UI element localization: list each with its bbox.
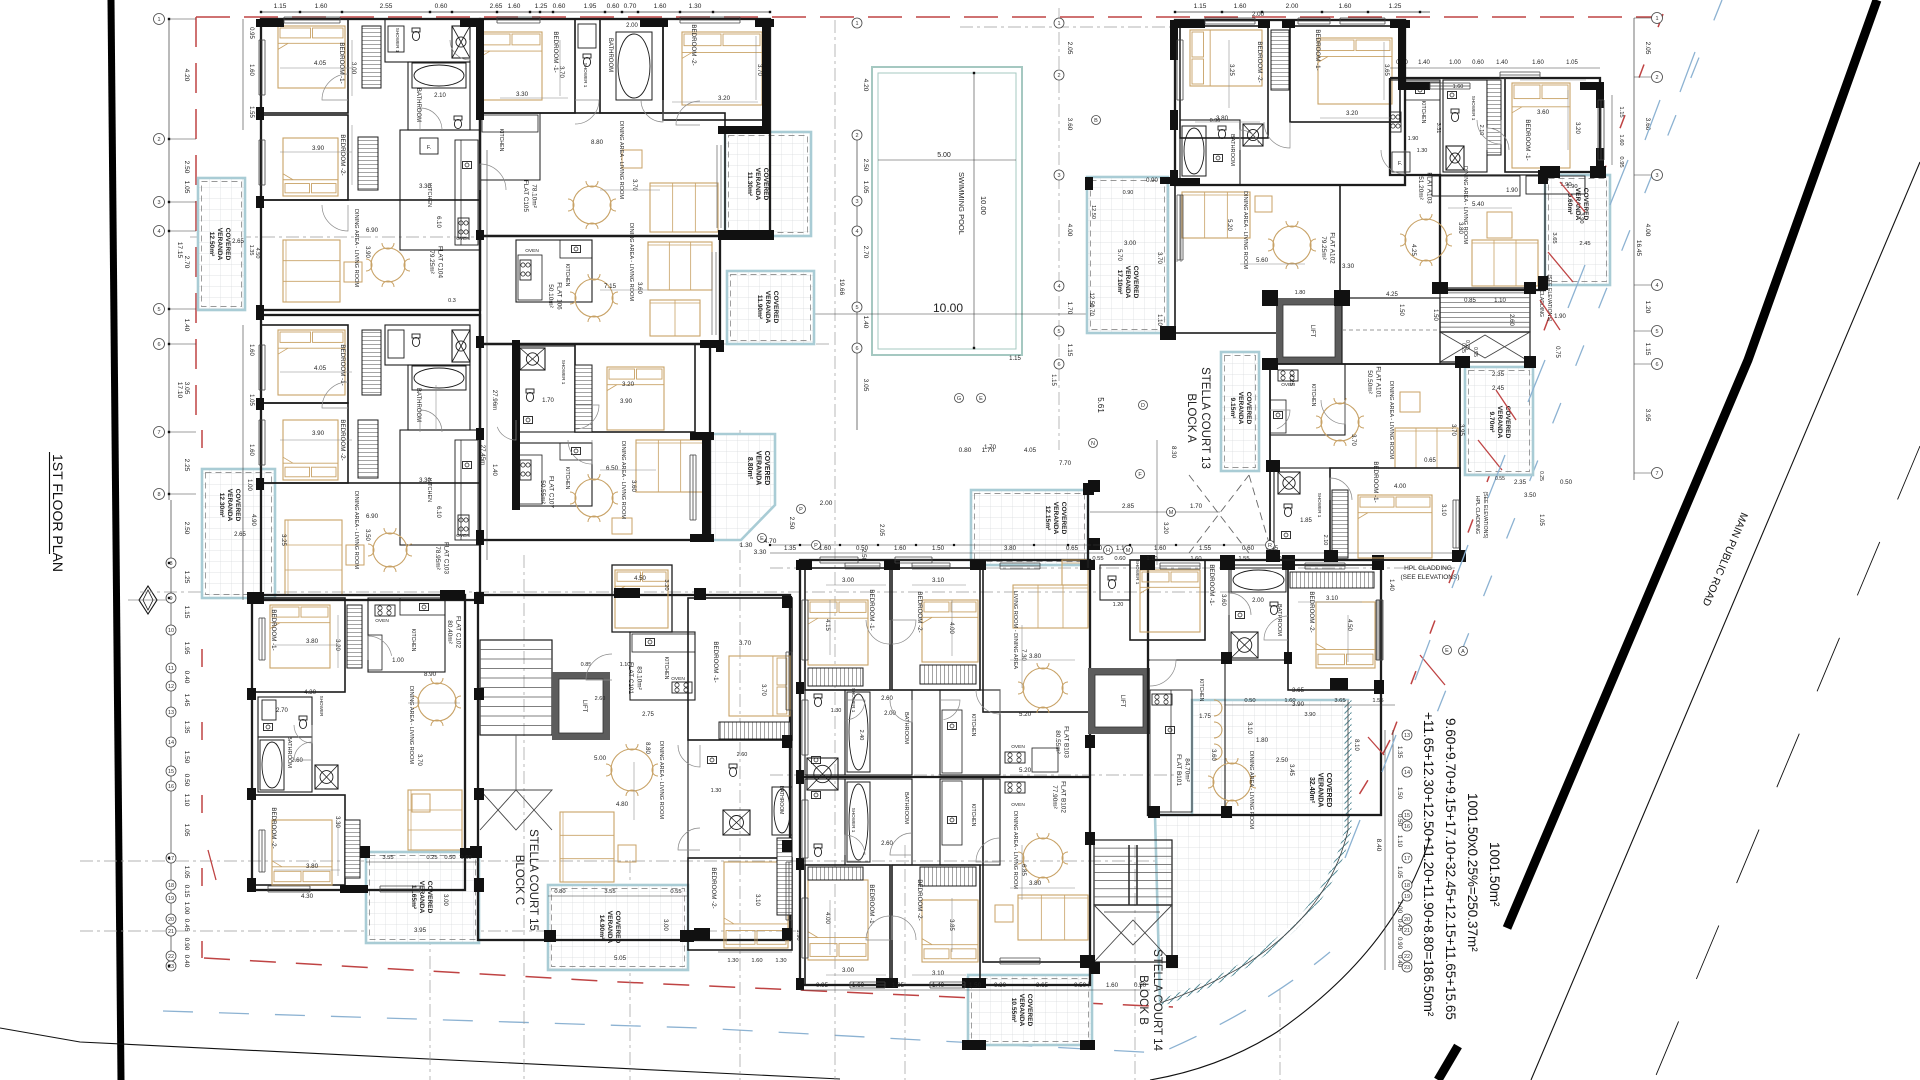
svg-text:LIVING ROOM - DINING AREA: LIVING ROOM - DINING AREA	[1012, 591, 1018, 670]
svg-text:BEDROOM -2-: BEDROOM -2-	[916, 591, 923, 632]
svg-text:22: 22	[1404, 954, 1410, 960]
svg-text:77.90m²: 77.90m²	[1051, 785, 1058, 808]
svg-text:2.70: 2.70	[183, 256, 190, 269]
svg-text:6.90: 6.90	[366, 227, 379, 234]
svg-text:3.25: 3.25	[280, 534, 286, 546]
svg-text:1.60: 1.60	[508, 3, 521, 10]
svg-text:23: 23	[1404, 965, 1410, 971]
svg-text:VERANDA: VERANDA	[764, 291, 771, 324]
svg-text:FLAT B101: FLAT B101	[1175, 754, 1182, 786]
svg-text:COVERED: COVERED	[614, 911, 621, 944]
svg-text:3.70: 3.70	[739, 640, 752, 647]
svg-text:2: 2	[1655, 75, 1658, 81]
svg-text:2.10: 2.10	[434, 93, 446, 99]
svg-text:0.60: 0.60	[1242, 545, 1255, 552]
svg-text:4.80: 4.80	[616, 801, 629, 808]
svg-text:1001.50x0.25%=250.37m²: 1001.50x0.25%=250.37m²	[1465, 793, 1480, 952]
svg-text:BEDROOM -1-: BEDROOM -1-	[339, 344, 346, 385]
svg-text:KITCHEN: KITCHEN	[1198, 679, 1204, 702]
svg-text:3.65: 3.65	[1334, 698, 1345, 704]
svg-text:8.10: 8.10	[1353, 739, 1359, 751]
svg-text:1.00: 1.00	[392, 658, 404, 664]
svg-text:BEDROOM -2-: BEDROOM -2-	[710, 867, 717, 908]
svg-text:1.90: 1.90	[1566, 184, 1577, 190]
svg-text:1.40: 1.40	[183, 319, 190, 332]
svg-text:1.05: 1.05	[1396, 866, 1403, 879]
svg-text:3.70: 3.70	[558, 66, 564, 78]
svg-text:9.15m²: 9.15m²	[1229, 398, 1236, 420]
svg-text:1.95: 1.95	[183, 642, 190, 655]
svg-text:B: B	[1094, 118, 1098, 124]
svg-text:1: 1	[1655, 16, 1658, 22]
svg-text:7.15: 7.15	[604, 283, 617, 290]
svg-text:3.85: 3.85	[948, 919, 954, 931]
svg-text:3.31: 3.31	[1435, 123, 1441, 134]
svg-text:DINING AREA - LIVING ROOM: DINING AREA - LIVING ROOM	[1248, 751, 1254, 829]
svg-text:3.00: 3.00	[442, 894, 448, 906]
svg-text:9.70m²: 9.70m²	[1488, 412, 1495, 434]
svg-text:3: 3	[855, 199, 858, 205]
svg-text:32.40m²: 32.40m²	[1308, 777, 1315, 804]
svg-text:FLAT B102: FLAT B102	[1060, 781, 1067, 813]
svg-text:0.70: 0.70	[624, 3, 637, 10]
svg-text:11: 11	[168, 666, 174, 672]
svg-text:2.60: 2.60	[881, 696, 893, 702]
svg-text:12: 12	[168, 684, 174, 690]
svg-text:3.00: 3.00	[842, 577, 855, 584]
svg-text:3.30: 3.30	[754, 549, 767, 556]
svg-text:VERANDA: VERANDA	[755, 451, 762, 486]
svg-text:0.60: 0.60	[607, 3, 620, 10]
svg-text:SHOWER 1: SHOWER 1	[583, 63, 588, 88]
svg-text:8.40: 8.40	[1375, 839, 1382, 852]
svg-text:2.00: 2.00	[1252, 11, 1265, 18]
svg-text:20: 20	[168, 917, 174, 923]
svg-text:0.95: 0.95	[816, 982, 829, 989]
svg-text:80.40m²: 80.40m²	[446, 620, 453, 643]
svg-text:2.85: 2.85	[1122, 503, 1135, 510]
svg-text:3: 3	[1057, 173, 1060, 179]
svg-text:3.10: 3.10	[932, 577, 945, 584]
svg-text:17.10: 17.10	[176, 382, 183, 399]
svg-text:1.05: 1.05	[248, 394, 254, 406]
svg-text:1.75: 1.75	[1199, 714, 1211, 720]
svg-text:1.55: 1.55	[1199, 545, 1212, 552]
svg-text:3.10: 3.10	[1326, 595, 1339, 602]
svg-text:0.55: 0.55	[1472, 347, 1478, 357]
svg-text:0.50: 0.50	[1074, 982, 1087, 989]
svg-text:3.80: 3.80	[1004, 545, 1017, 552]
svg-text:1.70: 1.70	[1066, 302, 1073, 315]
svg-text:0.60: 0.60	[1114, 556, 1125, 562]
svg-text:LIFT: LIFT	[581, 700, 587, 713]
svg-text:+11.65+12.30+12.50+11.20+11.90: +11.65+12.30+12.50+11.20+11.90+8.80=186.…	[1421, 712, 1436, 1017]
svg-text:P: P	[799, 507, 803, 513]
svg-text:0.50: 0.50	[1134, 982, 1147, 989]
svg-text:BATHROOM: BATHROOM	[903, 792, 909, 824]
svg-text:COVERED: COVERED	[224, 228, 231, 261]
svg-text:0.25: 0.25	[1538, 471, 1544, 481]
svg-text:E: E	[979, 396, 983, 402]
svg-text:COVERED: COVERED	[763, 451, 770, 486]
svg-text:FLAT C107: FLAT C107	[548, 476, 555, 509]
svg-text:2.60: 2.60	[737, 752, 748, 758]
svg-text:0.80: 0.80	[959, 447, 972, 454]
svg-text:2.25: 2.25	[183, 459, 190, 472]
svg-text:3.60: 3.60	[1537, 109, 1550, 116]
svg-text:P: P	[814, 543, 818, 549]
svg-text:1: 1	[1057, 21, 1060, 27]
svg-text:1.60: 1.60	[460, 855, 471, 861]
svg-text:20: 20	[1404, 917, 1410, 923]
svg-text:5.20: 5.20	[1019, 767, 1032, 774]
svg-text:3.60: 3.60	[1210, 749, 1216, 761]
svg-text:1.60: 1.60	[1106, 982, 1119, 989]
svg-text:BEDROOM -1-: BEDROOM -1-	[1314, 29, 1321, 70]
svg-text:0.3: 0.3	[448, 298, 456, 304]
svg-text:KITCHEN: KITCHEN	[1310, 384, 1316, 407]
svg-text:0.80: 0.80	[554, 889, 565, 895]
svg-text:7: 7	[157, 430, 160, 436]
svg-text:17.10m²: 17.10m²	[1116, 270, 1123, 295]
svg-text:8: 8	[157, 492, 160, 498]
svg-text:1.90: 1.90	[1408, 136, 1419, 142]
svg-text:4.00: 4.00	[948, 622, 954, 634]
svg-text:0.50: 0.50	[1244, 698, 1255, 704]
svg-text:1.25: 1.25	[1389, 3, 1402, 10]
svg-text:BEDROOM -1-: BEDROOM -1-	[712, 641, 719, 682]
svg-text:BEDROOM -2-: BEDROOM -2-	[916, 879, 923, 920]
svg-text:A: A	[1461, 649, 1465, 655]
svg-text:3.05: 3.05	[183, 382, 190, 395]
svg-text:4.00: 4.00	[824, 912, 830, 924]
svg-text:2.75: 2.75	[642, 712, 654, 718]
svg-text:3.95: 3.95	[1458, 424, 1464, 436]
svg-text:6.10: 6.10	[435, 216, 441, 228]
svg-text:6: 6	[157, 342, 160, 348]
svg-text:COVERED: COVERED	[762, 168, 769, 201]
svg-text:13: 13	[1404, 733, 1410, 739]
svg-text:OVEN: OVEN	[525, 248, 539, 254]
svg-text:18: 18	[168, 883, 174, 889]
svg-text:1.70: 1.70	[542, 398, 554, 404]
svg-text:19: 19	[168, 896, 174, 902]
svg-text:4.00: 4.00	[1066, 224, 1073, 237]
svg-text:6.85: 6.85	[1020, 864, 1026, 876]
svg-text:D: D	[1141, 403, 1145, 409]
svg-text:1.15: 1.15	[183, 606, 190, 619]
svg-text:BEDROOM -1-: BEDROOM -1-	[868, 884, 875, 925]
svg-text:78.10m²: 78.10m²	[531, 184, 538, 207]
svg-text:DINING AREA - LIVING ROOM: DINING AREA - LIVING ROOM	[620, 441, 626, 519]
svg-text:HPL CLADDING: HPL CLADDING	[1404, 565, 1452, 572]
svg-text:3.70: 3.70	[631, 179, 637, 191]
svg-text:OVEN: OVEN	[1011, 744, 1025, 750]
svg-text:0.50: 0.50	[1396, 814, 1403, 827]
svg-text:18: 18	[1404, 883, 1410, 889]
svg-text:4.30: 4.30	[304, 689, 317, 696]
svg-text:COVERED: COVERED	[1325, 773, 1332, 808]
svg-text:1.35: 1.35	[248, 245, 254, 256]
svg-text:21: 21	[1404, 928, 1410, 934]
svg-text:3.90: 3.90	[364, 246, 370, 258]
svg-text:5.60: 5.60	[1256, 257, 1269, 264]
svg-text:3.90: 3.90	[312, 145, 325, 152]
svg-text:1.70: 1.70	[1190, 503, 1203, 510]
svg-text:1: 1	[157, 17, 160, 23]
svg-text:14.90m²: 14.90m²	[598, 915, 605, 940]
svg-text:BEDROOM -1-: BEDROOM -1-	[338, 42, 345, 83]
svg-text:15: 15	[168, 769, 174, 775]
svg-text:BEDROOM -1-: BEDROOM -1-	[1208, 564, 1215, 605]
svg-text:FLAT A102: FLAT A102	[1329, 232, 1336, 264]
svg-text:14: 14	[168, 740, 174, 746]
svg-text:3.80: 3.80	[306, 863, 319, 870]
svg-text:5: 5	[855, 305, 858, 311]
svg-text:0.95: 0.95	[1618, 156, 1624, 167]
svg-text:2.05: 2.05	[1066, 42, 1073, 55]
svg-text:0.85: 0.85	[1464, 298, 1476, 304]
svg-text:1.00: 1.00	[183, 902, 190, 915]
svg-text:14: 14	[1404, 770, 1410, 776]
svg-text:1.60: 1.60	[894, 545, 907, 552]
svg-text:DINING AREA - LIVING ROOM: DINING AREA - LIVING ROOM	[628, 223, 634, 301]
svg-text:3.00: 3.00	[842, 967, 855, 974]
svg-text:1.40: 1.40	[491, 464, 497, 476]
svg-text:3.70: 3.70	[1156, 252, 1162, 264]
svg-text:FLAT C103: FLAT C103	[443, 542, 450, 575]
svg-text:1.60: 1.60	[248, 344, 254, 356]
svg-text:1.10: 1.10	[1396, 835, 1403, 848]
svg-text:0.45: 0.45	[1396, 919, 1403, 932]
svg-text:3.10: 3.10	[1246, 722, 1252, 734]
svg-text:2.35: 2.35	[1514, 479, 1527, 486]
svg-text:12.15m²: 12.15m²	[1044, 506, 1051, 531]
svg-text:2.60: 2.60	[1508, 314, 1514, 326]
svg-text:1.60: 1.60	[248, 444, 254, 456]
svg-text:2.10: 2.10	[1322, 535, 1328, 546]
svg-text:0.75: 0.75	[1554, 346, 1560, 358]
svg-text:(SEE ELEVATIONS): (SEE ELEVATIONS)	[1482, 491, 1488, 538]
svg-text:4: 4	[855, 229, 858, 235]
svg-text:1.05: 1.05	[183, 866, 190, 879]
svg-text:3.90: 3.90	[312, 430, 325, 437]
svg-text:5.05: 5.05	[614, 955, 627, 962]
svg-text:6.10: 6.10	[435, 506, 441, 518]
svg-text:3.80: 3.80	[1029, 653, 1042, 660]
svg-text:SHOWER 1: SHOWER 1	[1317, 493, 1322, 518]
svg-text:G: G	[957, 396, 961, 402]
svg-text:KITCHEN: KITCHEN	[1420, 101, 1426, 124]
svg-text:COVERED: COVERED	[1060, 502, 1067, 535]
svg-text:4.20: 4.20	[183, 69, 190, 82]
svg-text:OVEN: OVEN	[1011, 802, 1025, 808]
svg-text:DINING AREA - LIVING ROOM: DINING AREA - LIVING ROOM	[1242, 191, 1248, 269]
svg-text:SWIMMING POOL: SWIMMING POOL	[957, 172, 966, 235]
svg-text:4.05: 4.05	[314, 365, 327, 372]
svg-text:1.15: 1.15	[1009, 356, 1021, 362]
svg-text:0.65: 0.65	[1424, 458, 1436, 464]
svg-text:3.90: 3.90	[1578, 212, 1584, 223]
svg-text:3.65: 3.65	[1036, 982, 1049, 989]
svg-text:12.50: 12.50	[1090, 205, 1096, 219]
svg-text:F.: F.	[427, 145, 432, 151]
svg-text:3.70: 3.70	[760, 684, 766, 696]
svg-text:COVERED: COVERED	[1026, 994, 1033, 1027]
svg-text:1.60: 1.60	[819, 545, 832, 552]
svg-text:3.20: 3.20	[718, 95, 731, 102]
svg-text:0.90: 0.90	[1210, 118, 1221, 124]
svg-text:4: 4	[1655, 283, 1658, 289]
svg-text:5.00: 5.00	[937, 152, 951, 159]
svg-text:3.05: 3.05	[862, 379, 869, 392]
svg-text:9.60+9.70+9.15+17.10+32.45+12.: 9.60+9.70+9.15+17.10+32.45+12.15+11.65+1…	[1443, 718, 1458, 1020]
svg-text:VERANDA: VERANDA	[1496, 406, 1503, 439]
svg-text:4.50: 4.50	[1346, 619, 1352, 631]
svg-text:1.60: 1.60	[1154, 545, 1167, 552]
svg-text:DINING AREA - LIVING ROOM: DINING AREA - LIVING ROOM	[1012, 811, 1018, 889]
svg-text:4: 4	[157, 229, 160, 235]
svg-text:1ST FLOOR PLAN: 1ST FLOOR PLAN	[50, 454, 66, 572]
svg-text:1.40: 1.40	[1496, 60, 1508, 66]
svg-text:1.45: 1.45	[183, 694, 190, 707]
svg-text:0.50: 0.50	[444, 855, 455, 861]
svg-text:VERANDA: VERANDA	[1237, 392, 1244, 425]
svg-text:5: 5	[1057, 329, 1060, 335]
svg-text:1.30: 1.30	[711, 788, 722, 794]
svg-text:KITCHEN: KITCHEN	[663, 657, 669, 680]
svg-text:1.60: 1.60	[1618, 134, 1624, 145]
svg-text:1.30: 1.30	[831, 708, 842, 714]
svg-text:7.30: 7.30	[1020, 649, 1026, 661]
svg-text:0.50: 0.50	[856, 545, 869, 552]
svg-text:VERANDA: VERANDA	[226, 489, 233, 522]
svg-text:1.40: 1.40	[1418, 60, 1430, 66]
svg-text:1.40: 1.40	[932, 982, 945, 989]
svg-text:3.20: 3.20	[622, 381, 635, 388]
svg-text:1.55: 1.55	[1372, 698, 1383, 704]
svg-text:KITCHEN: KITCHEN	[970, 714, 976, 737]
svg-text:1.05: 1.05	[1538, 514, 1544, 526]
svg-text:3.60: 3.60	[1066, 118, 1073, 131]
svg-text:1.70: 1.70	[1088, 304, 1094, 316]
svg-text:7.70: 7.70	[1059, 460, 1072, 467]
svg-text:27.45m: 27.45m	[479, 445, 486, 466]
svg-text:LIFT: LIFT	[1119, 695, 1125, 708]
svg-text:1: 1	[855, 21, 858, 27]
svg-text:2.25: 2.25	[1288, 374, 1294, 386]
svg-text:SHOWER 1: SHOWER 1	[395, 28, 400, 53]
svg-text:1.05: 1.05	[183, 181, 190, 194]
svg-text:DINING AREA - LIVING ROOM: DINING AREA - LIVING ROOM	[408, 686, 414, 764]
svg-text:1.60: 1.60	[1532, 60, 1544, 66]
svg-text:KITCHEN: KITCHEN	[498, 129, 504, 152]
svg-text:2.35: 2.35	[1492, 371, 1505, 378]
svg-text:BEDROOM -1-: BEDROOM -1-	[868, 589, 875, 630]
svg-text:80.55m²: 80.55m²	[1054, 730, 1061, 753]
svg-text:3.55: 3.55	[382, 855, 393, 861]
svg-text:50.10m²: 50.10m²	[547, 284, 554, 307]
svg-text:2.45: 2.45	[1579, 241, 1590, 247]
svg-text:1.15: 1.15	[1066, 344, 1073, 357]
svg-text:1.60: 1.60	[751, 958, 762, 964]
svg-text:1.60: 1.60	[1339, 3, 1352, 10]
svg-text:3.70: 3.70	[416, 754, 422, 766]
svg-text:OVEN: OVEN	[671, 676, 685, 682]
svg-text:BEDROOM -1-: BEDROOM -1-	[1524, 119, 1531, 160]
svg-text:DINING AREA - LIVING ROOM: DINING AREA - LIVING ROOM	[353, 491, 359, 569]
svg-text:0.55: 0.55	[1092, 556, 1103, 562]
svg-text:0.90: 0.90	[1146, 178, 1158, 184]
svg-text:22: 22	[168, 954, 174, 960]
svg-text:5: 5	[1655, 329, 1658, 335]
svg-text:0.60: 0.60	[435, 3, 448, 10]
svg-text:2.60: 2.60	[595, 696, 606, 702]
svg-text:DINING AREA - LIVING ROOM: DINING AREA - LIVING ROOM	[658, 741, 664, 819]
svg-text:1.30: 1.30	[727, 958, 738, 964]
svg-text:8.30: 8.30	[1170, 446, 1177, 459]
svg-text:5.20: 5.20	[1226, 219, 1232, 231]
svg-text:KITCHEN: KITCHEN	[564, 467, 570, 490]
svg-text:0.40: 0.40	[183, 671, 190, 684]
svg-text:M: M	[1126, 548, 1131, 554]
svg-text:1.05: 1.05	[892, 982, 905, 989]
svg-text:1.30: 1.30	[1417, 148, 1428, 154]
svg-text:0.60: 0.60	[1472, 60, 1484, 66]
svg-text:2.00: 2.00	[626, 23, 638, 29]
svg-text:1.80: 1.80	[1295, 290, 1306, 296]
svg-text:1.60: 1.60	[654, 3, 667, 10]
svg-text:3: 3	[157, 200, 160, 206]
svg-text:OVEN: OVEN	[456, 236, 470, 242]
svg-text:21: 21	[168, 929, 174, 935]
svg-text:1.00: 1.00	[1449, 60, 1461, 66]
svg-text:0.40: 0.40	[183, 955, 190, 968]
svg-text:FLAT A101: FLAT A101	[1375, 366, 1382, 398]
svg-text:2.55: 2.55	[380, 3, 393, 10]
svg-text:0.90: 0.90	[1123, 190, 1134, 196]
svg-text:1.15: 1.15	[274, 3, 287, 10]
svg-text:4.20: 4.20	[862, 79, 869, 92]
svg-text:8.80m²: 8.80m²	[746, 457, 753, 480]
svg-text:8.80: 8.80	[644, 742, 650, 754]
svg-text:8.90: 8.90	[424, 671, 437, 678]
svg-text:4: 4	[1057, 284, 1060, 290]
svg-text:OVEN: OVEN	[375, 618, 389, 624]
svg-text:0.95: 0.95	[248, 27, 254, 39]
svg-text:COVERED: COVERED	[1132, 266, 1139, 299]
svg-text:1.80: 1.80	[1256, 737, 1269, 744]
svg-text:3.00: 3.00	[662, 919, 668, 931]
svg-text:50.55m²: 50.55m²	[539, 480, 546, 503]
svg-text:1.60: 1.60	[1284, 698, 1295, 704]
svg-text:0.55: 0.55	[670, 889, 681, 895]
svg-text:VERANDA: VERANDA	[606, 911, 613, 944]
svg-text:BATHROOM: BATHROOM	[903, 712, 909, 744]
svg-text:BATHROOM: BATHROOM	[1229, 134, 1235, 166]
svg-text:51.20m²: 51.20m²	[1417, 176, 1424, 199]
svg-text:0.90: 0.90	[1396, 937, 1403, 950]
svg-text:1.60: 1.60	[852, 982, 865, 989]
svg-text:2.70: 2.70	[276, 708, 288, 714]
svg-text:10: 10	[168, 628, 174, 634]
svg-text:6: 6	[855, 346, 858, 352]
svg-text:6: 6	[1057, 362, 1060, 368]
svg-text:12.30m²: 12.30m²	[218, 493, 225, 518]
svg-text:1.55: 1.55	[248, 106, 254, 118]
svg-text:KITCHEN: KITCHEN	[970, 804, 976, 827]
svg-text:1.40: 1.40	[862, 316, 869, 329]
